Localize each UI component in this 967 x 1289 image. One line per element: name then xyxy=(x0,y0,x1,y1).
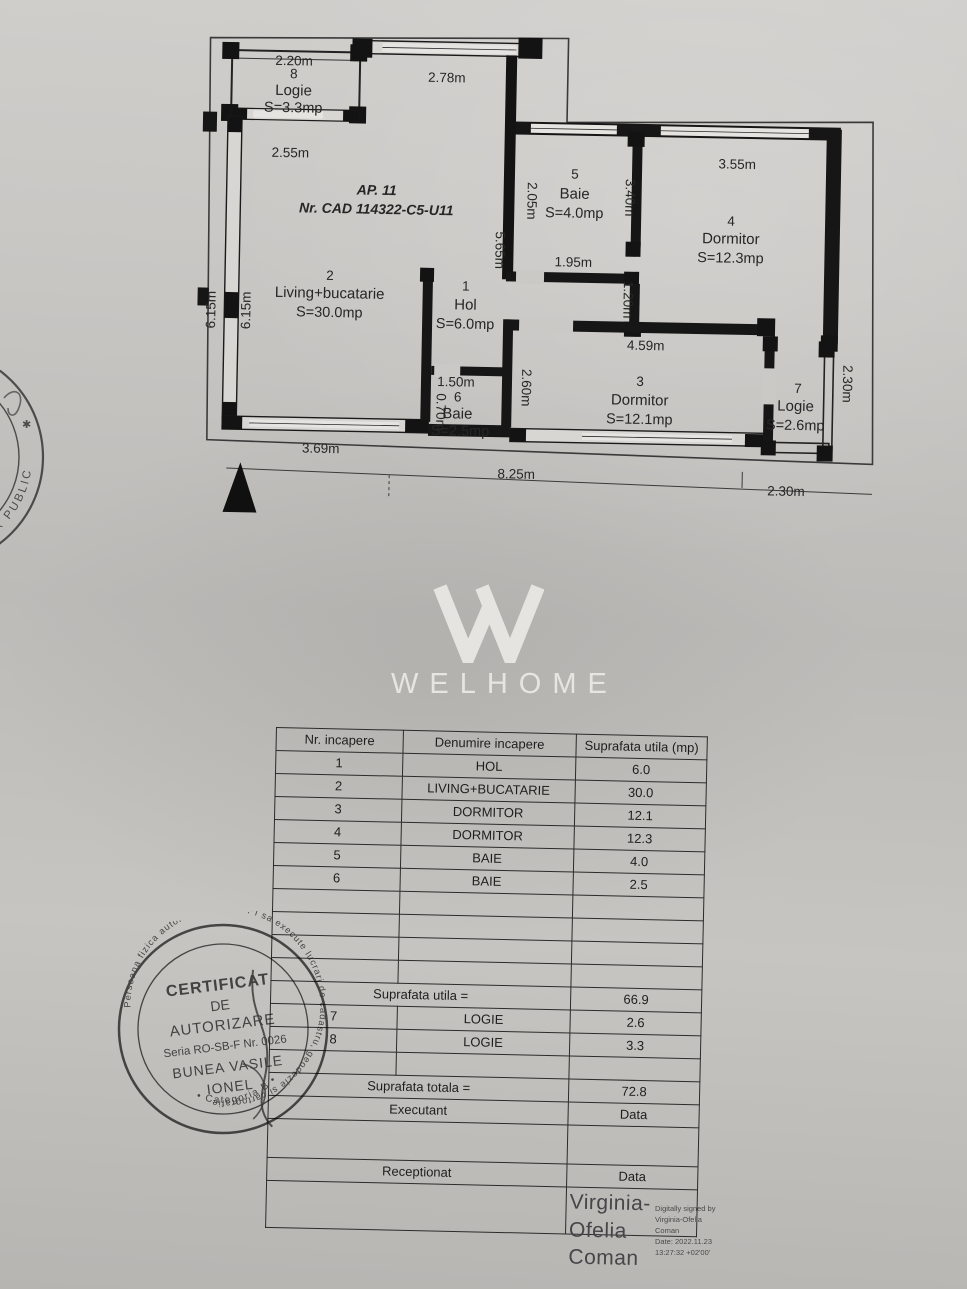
col-header-suprafata: Suprafata utila (mp) xyxy=(576,734,708,760)
cell-nr: 3 xyxy=(274,796,401,822)
room-dorm3: 3 Dormitor S=12.1mp xyxy=(606,373,674,428)
floor-plan: AP. 11 Nr. CAD 114322-C5-U11 8 Logie S=3… xyxy=(185,19,897,537)
signature-name-line: Virginia- xyxy=(569,1189,651,1218)
dim-label: 3.69m xyxy=(302,440,340,456)
cell-nr: 6 xyxy=(273,865,400,891)
exterior-wall xyxy=(222,116,242,420)
wall-pillar xyxy=(222,42,239,59)
wall-pillar xyxy=(817,445,833,461)
cell-area: 12.3 xyxy=(574,826,706,852)
room-name: Dormitor xyxy=(702,230,760,248)
dim-label: 1.95m xyxy=(554,254,592,270)
welhome-wordmark: WELHOME xyxy=(380,668,595,701)
room-number: 6 xyxy=(454,389,462,404)
welhome-watermark: WELHOME xyxy=(380,583,595,701)
suprafata-totala-value: 72.8 xyxy=(568,1079,700,1105)
wall-pillar xyxy=(510,428,526,441)
wall-pillar xyxy=(405,419,428,432)
cell-area: 2.5 xyxy=(573,872,705,898)
dim-label: 2.30m xyxy=(840,365,856,403)
wall-pillar xyxy=(343,110,359,121)
wall-pillar xyxy=(763,336,778,351)
wall-pillar xyxy=(757,318,775,336)
room-number: 8 xyxy=(290,66,298,81)
cell-nr: 1 xyxy=(275,751,402,777)
dim-label: 0.70m xyxy=(433,393,449,431)
wall-pillar xyxy=(222,416,242,429)
digsig-line: 13:27:32 +02'00' xyxy=(655,1248,755,1259)
signature-name: Virginia- Ofelia Coman xyxy=(568,1189,651,1274)
dim-label: 6.15m xyxy=(238,291,254,329)
room-area: S=4.0mp xyxy=(545,205,604,222)
door-opening xyxy=(519,318,573,334)
wall-pillar xyxy=(518,38,542,59)
room-name: Baie xyxy=(559,185,589,203)
digsig-line: Coman xyxy=(655,1226,755,1237)
door-opening xyxy=(516,270,544,285)
cell-area: 4.0 xyxy=(573,849,705,875)
stamp-title: CERTIFICAT xyxy=(165,971,270,1001)
room-number: 1 xyxy=(462,278,470,293)
authorization-stamp: Persoana fizica autorizata de ANCPI sa e… xyxy=(97,903,349,1155)
cell-nr: 5 xyxy=(273,842,400,868)
wall-pillar xyxy=(224,292,238,318)
digsig-line: Digitally signed by xyxy=(655,1204,755,1215)
interior-wall xyxy=(420,272,433,422)
room-area: S=3.3mp xyxy=(264,100,323,117)
dim-label: 2.60m xyxy=(519,369,535,407)
room-area: S=12.1mp xyxy=(606,411,673,428)
wall-pillar xyxy=(420,268,434,282)
suprafata-utila-value: 66.9 xyxy=(570,987,702,1013)
room-living: 2 Living+bucatarie S=30.0mp xyxy=(274,267,385,322)
cell-nr: 2 xyxy=(275,773,402,799)
signature-name-line: Coman xyxy=(568,1244,650,1273)
dim-label: 1.50m xyxy=(437,374,475,390)
digital-signature-details: Digitally signed by Virginia-Ofelia Coma… xyxy=(655,1204,755,1258)
digsig-line: Virginia-Ofelia xyxy=(655,1215,755,1226)
exterior-wall xyxy=(823,129,842,343)
cell-area: 3.3 xyxy=(569,1033,701,1059)
room-logie8: 8 Logie S=3.3mp xyxy=(264,66,323,117)
room-number: 5 xyxy=(571,167,579,182)
notary-stamp: NOTAR PUBLIC ✱ xyxy=(0,370,110,575)
room-area: S=30.0mp xyxy=(296,304,363,321)
executant-data-label: Data xyxy=(568,1102,700,1128)
stamp-title: DE xyxy=(209,996,230,1014)
dim-label: 4.59m xyxy=(627,338,665,354)
dim-label: 1.20m xyxy=(620,281,636,319)
cell-area: 12.1 xyxy=(574,803,706,829)
room-dorm4: 4 Dormitor S=12.3mp xyxy=(697,213,765,267)
dim-label: 2.78m xyxy=(428,70,466,86)
room-name: Logie xyxy=(275,82,312,100)
area-table: Nr. incapere Denumire incapere Suprafata… xyxy=(265,727,708,1237)
dim-label: 3.55m xyxy=(718,156,756,172)
apartment-title: AP. 11 xyxy=(356,181,397,198)
wall-pillar xyxy=(761,440,776,455)
logo-stroke xyxy=(482,587,538,657)
cell-nr: 4 xyxy=(274,819,401,845)
wall-pillar xyxy=(819,341,835,357)
dim-label: 2.20m xyxy=(275,53,313,69)
col-header-nr: Nr. incapere xyxy=(276,728,403,754)
dim-label: 6.15m xyxy=(203,291,219,329)
room-hol: 1 Hol S=6.0mp xyxy=(436,278,495,333)
wall-pillar xyxy=(625,242,640,257)
receptionat-data-label: Data xyxy=(566,1164,698,1190)
digsig-line: Date: 2022.11.23 xyxy=(655,1237,755,1248)
room-area: S=6.0mp xyxy=(436,316,495,333)
room-number: 2 xyxy=(326,268,334,283)
logie7-outline xyxy=(823,347,834,449)
dim-label: 5.65m xyxy=(492,231,508,269)
wall-pillar xyxy=(228,116,242,132)
dim-label: 3.40m xyxy=(622,179,638,217)
room-name: Hol xyxy=(454,296,477,313)
wall-pillar xyxy=(352,38,372,57)
room-name: Living+bucatarie xyxy=(275,284,385,303)
cell-area: 6.0 xyxy=(575,757,707,783)
room-name: Logie xyxy=(777,398,814,416)
stamp-star-icon: ✱ xyxy=(22,419,31,431)
dim-label: 2.30m xyxy=(767,483,805,499)
signature-name-line: Ofelia xyxy=(569,1216,651,1245)
boundary-pillar xyxy=(203,111,217,131)
door-opening xyxy=(762,368,777,404)
wall-pillar xyxy=(628,132,645,147)
room-number: 7 xyxy=(794,381,802,396)
welhome-logo-icon xyxy=(432,583,544,663)
cell-area: 30.0 xyxy=(575,780,707,806)
dim-label: 2.05m xyxy=(524,182,540,220)
room-number: 3 xyxy=(636,374,644,389)
room-name: Dormitor xyxy=(611,391,669,409)
room-baie5: 5 Baie S=4.0mp xyxy=(545,166,604,222)
dim-label: 8.25m xyxy=(497,466,535,482)
room-area: S=2.6mp xyxy=(766,417,825,434)
room-area: S=12.3mp xyxy=(697,250,764,267)
room-number: 4 xyxy=(727,214,735,229)
cadastral-number: Nr. CAD 114322-C5-U11 xyxy=(299,199,454,218)
cell-area: 2.6 xyxy=(570,1010,702,1036)
signature-row: Virginia- Ofelia Coman xyxy=(266,1180,698,1236)
dim-label: 2.55m xyxy=(271,145,309,161)
